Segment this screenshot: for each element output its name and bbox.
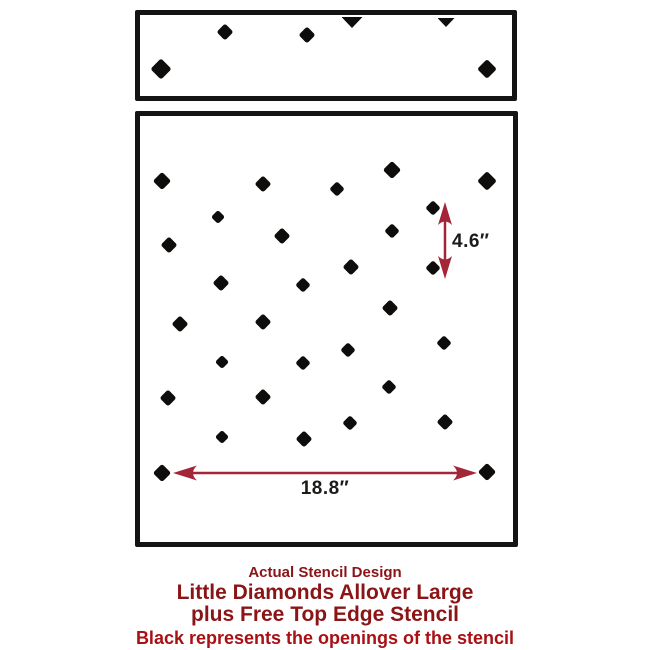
horizontal-dimension-label: 18.8″	[0, 478, 650, 500]
stencil-product-image: 4.6″ 18.8″ Actual Stencil Design Little …	[0, 0, 650, 650]
caption-line-bonus: plus Free Top Edge Stencil	[0, 604, 650, 626]
top-edge-stencil-panel	[135, 10, 517, 101]
caption: Actual Stencil Design Little Diamonds Al…	[0, 564, 650, 649]
caption-line-product-name: Little Diamonds Allover Large	[0, 582, 650, 604]
caption-line-design: Actual Stencil Design	[0, 564, 650, 582]
caption-line-notice: Black represents the openings of the ste…	[0, 628, 650, 649]
vertical-dimension-label: 4.6″	[452, 231, 490, 253]
